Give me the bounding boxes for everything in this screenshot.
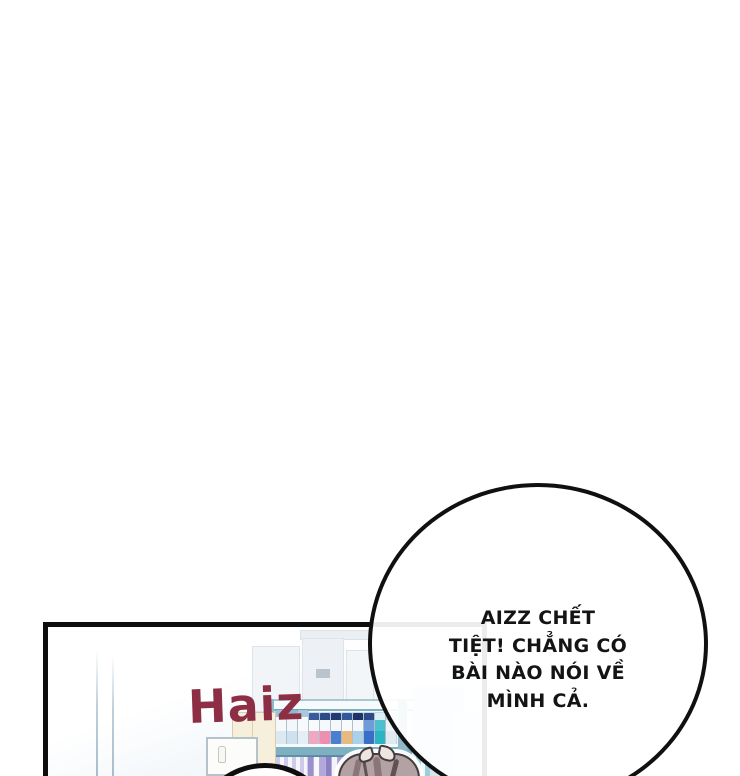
book-spine bbox=[314, 757, 319, 776]
shelf-product bbox=[309, 713, 319, 744]
book-spine bbox=[308, 757, 313, 776]
dialogue-line: AIZZ CHẾT bbox=[400, 605, 676, 633]
product-body bbox=[276, 731, 286, 744]
product-body bbox=[375, 731, 385, 744]
product-body bbox=[331, 731, 341, 744]
hair-streak bbox=[362, 761, 368, 776]
product-body bbox=[386, 731, 396, 744]
shelf-product bbox=[364, 713, 374, 744]
product-body bbox=[353, 731, 363, 744]
product-body bbox=[298, 731, 308, 744]
webtoon-page: Haiz AIZZ CHẾT TIỆT! CHẲNG CÓ BÀI NÀO NÓ… bbox=[0, 0, 740, 776]
wall-edge-line bbox=[96, 649, 98, 776]
wall-edge-line bbox=[112, 655, 114, 776]
shelf-product bbox=[331, 713, 341, 744]
bottle-sketch bbox=[218, 746, 226, 763]
product-cap bbox=[309, 713, 319, 720]
book-spine bbox=[332, 757, 337, 776]
product-cap bbox=[342, 713, 352, 720]
speech-bubble-text: AIZZ CHẾT TIỆT! CHẲNG CÓ BÀI NÀO NÓI VỀ … bbox=[400, 605, 676, 715]
shelf-product bbox=[375, 713, 385, 744]
dialogue-line: TIỆT! CHẲNG CÓ bbox=[400, 633, 676, 661]
product-body bbox=[309, 731, 319, 744]
product-cap bbox=[331, 713, 341, 720]
product-cap bbox=[320, 713, 330, 720]
product-body bbox=[364, 731, 374, 744]
product-cap bbox=[353, 713, 363, 720]
dialogue-line: BÀI NÀO NÓI VỀ bbox=[400, 660, 676, 688]
speech-bubble: AIZZ CHẾT TIỆT! CHẲNG CÓ BÀI NÀO NÓI VỀ … bbox=[368, 483, 708, 776]
product-body bbox=[287, 731, 297, 744]
product-cap bbox=[364, 713, 374, 720]
shelf-product bbox=[353, 713, 363, 744]
shelf-product bbox=[320, 713, 330, 744]
shelf-product bbox=[342, 713, 352, 744]
dialogue-line: MÌNH CẢ. bbox=[400, 688, 676, 716]
book-spine bbox=[320, 757, 325, 776]
product-body bbox=[320, 731, 330, 744]
product-cap bbox=[375, 713, 385, 720]
fixture-label bbox=[316, 669, 330, 678]
hair-streak bbox=[373, 757, 382, 776]
sfx-haiz: Haiz bbox=[187, 676, 305, 734]
product-body bbox=[342, 731, 352, 744]
book-spine bbox=[326, 757, 331, 776]
